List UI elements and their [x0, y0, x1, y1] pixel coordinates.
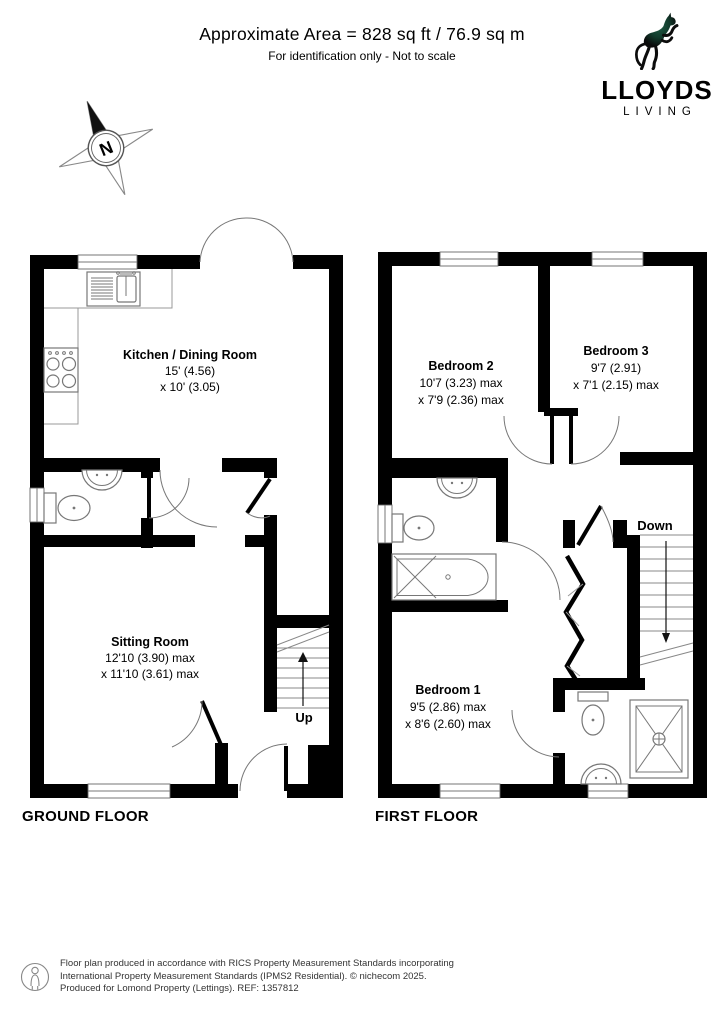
landing-cupboard-door-arc: [601, 506, 613, 542]
first-floor-label: FIRST FLOOR: [375, 808, 478, 825]
cupboard-door-leaf: [247, 479, 270, 513]
bathroom-toilet: [392, 514, 434, 542]
kitchen-sink: [87, 272, 140, 306]
kitchen-label: Kitchen / Dining Room 15' (4.56) x 10' (…: [123, 348, 257, 394]
wc-door-arc: [149, 478, 189, 518]
ground-floor-label: GROUND FLOOR: [22, 808, 149, 825]
bedroom1-name: Bedroom 1: [415, 683, 480, 697]
bedroom1-door-arc: [512, 710, 559, 757]
up-arrow-icon: [298, 652, 308, 662]
sitting-name: Sitting Room: [111, 635, 189, 649]
hob: [44, 348, 78, 392]
bedroom2-name: Bedroom 2: [428, 359, 493, 373]
ensuite-toilet: [578, 692, 608, 735]
front-door-arc: [240, 744, 287, 791]
bedroom2-label: Bedroom 2 10'7 (3.23) max x 7'9 (2.36) m…: [418, 359, 504, 407]
bedroom2-door-arc: [504, 416, 552, 464]
stairs-down-label: Down: [637, 518, 672, 533]
bedroom2-dim2: x 7'9 (2.36) max: [418, 393, 504, 407]
ground-floor-plan: Up Kitchen / Dining Room 15' (4.56) x 10…: [30, 218, 343, 798]
kitchen-name: Kitchen / Dining Room: [123, 348, 257, 362]
landing-cupboard-door-leaf: [578, 506, 601, 545]
bedroom1-dim2: x 8'6 (2.60) max: [405, 717, 491, 731]
stairs-up: Up: [277, 625, 329, 725]
ensuite-basin: [581, 764, 621, 784]
bedroom3-name: Bedroom 3: [583, 344, 648, 358]
bedroom2-dim1: 10'7 (3.23) max: [420, 376, 503, 390]
sitting-dim2: x 11'10 (3.61) max: [101, 667, 199, 681]
floor-plans: Up Kitchen / Dining Room 15' (4.56) x 10…: [0, 0, 724, 1023]
kitchen-dim1: 15' (4.56): [165, 364, 215, 378]
floorplan-page: Approximate Area = 828 sq ft / 76.9 sq m…: [0, 0, 724, 1023]
footer-line1: Floor plan produced in accordance with R…: [60, 958, 580, 971]
bathroom-basin: [437, 478, 477, 498]
shower: [630, 700, 688, 778]
stairs-down: Down: [637, 518, 693, 665]
wc-basin: [82, 470, 122, 490]
sitting-room-label: Sitting Room 12'10 (3.90) max x 11'10 (3…: [101, 635, 199, 681]
stairs-up-label: Up: [295, 710, 312, 725]
first-floor-plan: Down Bedroom 2 10'7 (3.23) max x 7'9 (2.…: [378, 252, 707, 798]
down-arrow-icon: [662, 633, 670, 643]
bedroom1-label: Bedroom 1 9'5 (2.86) max x 8'6 (2.60) ma…: [405, 683, 491, 731]
wc-toilet: [44, 493, 90, 523]
footer: Floor plan produced in accordance with R…: [20, 958, 580, 996]
bedroom3-dim1: 9'7 (2.91): [591, 361, 641, 375]
person-icon: [20, 958, 52, 998]
kitchen-dim2: x 10' (3.05): [160, 380, 220, 394]
bath: [392, 554, 496, 600]
bedroom1-dim1: 9'5 (2.86) max: [410, 700, 486, 714]
footer-line3: Produced for Lomond Property (Lettings).…: [60, 983, 580, 996]
front-door-opening: [238, 784, 287, 798]
footer-line2: International Property Measurement Stand…: [60, 971, 580, 984]
sitting-room-door-arc: [172, 701, 202, 747]
bedroom3-label: Bedroom 3 9'7 (2.91) x 7'1 (2.15) max: [573, 344, 659, 392]
bedroom3-door-arc: [571, 416, 619, 464]
sitting-dim1: 12'10 (3.90) max: [105, 651, 195, 665]
bedroom3-dim2: x 7'1 (2.15) max: [573, 378, 659, 392]
french-door-opening: [200, 255, 293, 269]
bifold-cupboard-doors: [566, 556, 583, 688]
bathroom-door-arc: [502, 542, 560, 600]
sitting-room-door-leaf: [202, 701, 222, 747]
